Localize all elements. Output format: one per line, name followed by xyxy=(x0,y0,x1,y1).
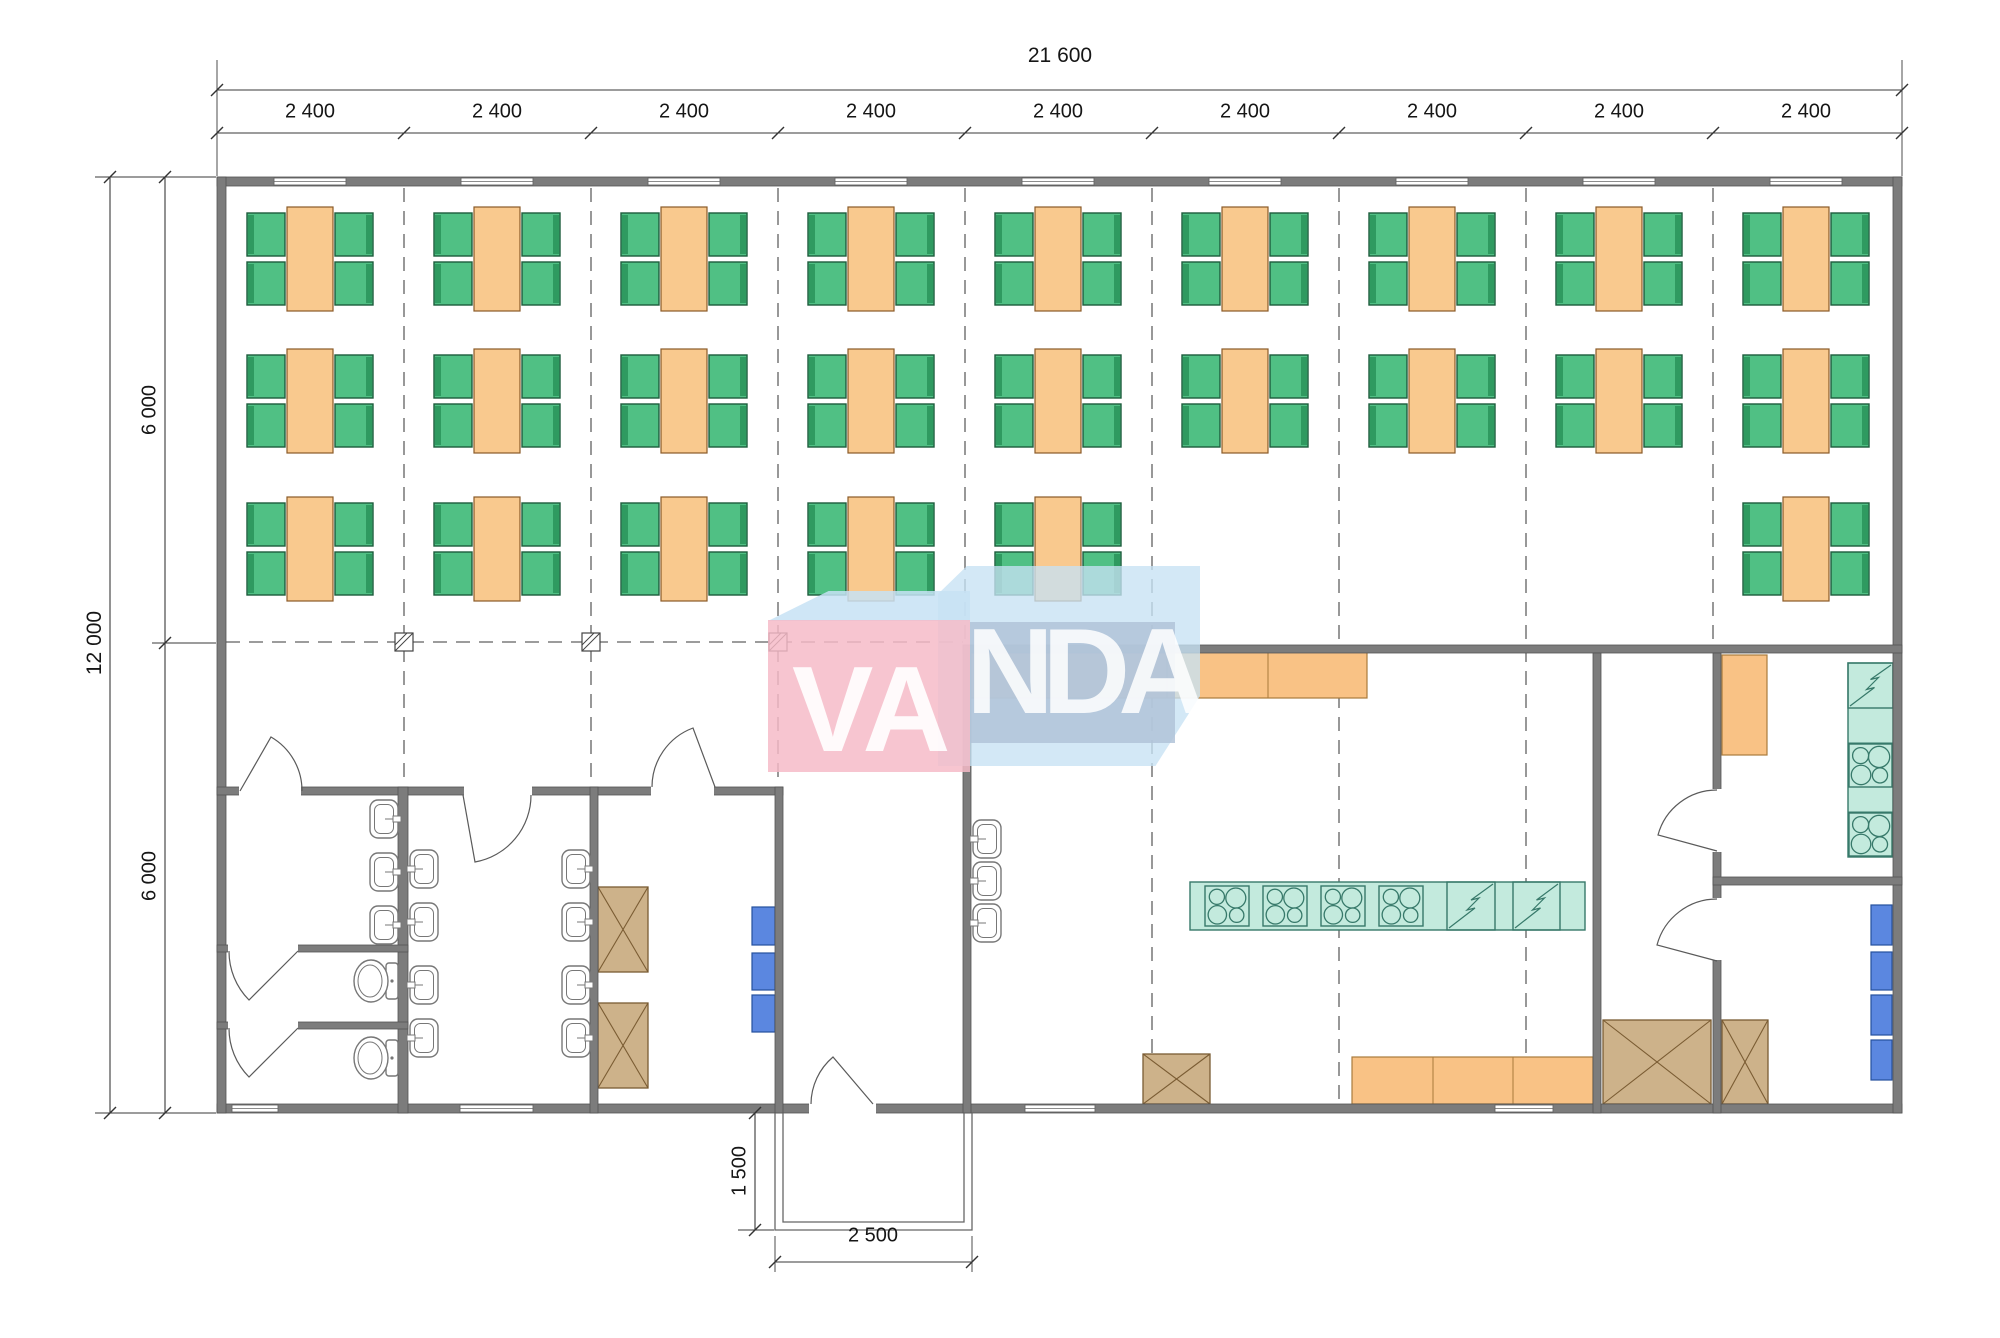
counter xyxy=(971,652,1367,698)
chair-icon xyxy=(927,505,933,544)
chair-icon xyxy=(366,554,372,593)
chair-icon xyxy=(366,406,372,445)
chair-icon xyxy=(1557,406,1563,445)
faucet-icon xyxy=(407,982,415,988)
door-icon xyxy=(1657,899,1717,961)
chair-icon xyxy=(996,406,1002,445)
faucet-icon xyxy=(393,922,401,928)
chair-icon xyxy=(1370,264,1376,303)
appliance-unit xyxy=(1871,995,1892,1035)
faucet-icon xyxy=(970,920,978,926)
dining-table xyxy=(474,497,520,601)
chair-icon xyxy=(740,505,746,544)
chair-icon xyxy=(1862,406,1868,445)
dining-table xyxy=(1035,349,1081,453)
toilet-icon xyxy=(390,979,393,982)
door-opening xyxy=(239,785,301,796)
chair-icon xyxy=(248,505,254,544)
chair-icon xyxy=(248,554,254,593)
floor-plan-drawing xyxy=(0,0,2000,1338)
chair-icon xyxy=(927,215,933,254)
chair-icon xyxy=(1183,215,1189,254)
chair-icon xyxy=(435,264,441,303)
door-opening xyxy=(228,943,298,953)
chair-icon xyxy=(1744,505,1750,544)
chair-icon xyxy=(1114,357,1120,396)
door-icon xyxy=(1658,790,1717,851)
chair-icon xyxy=(435,357,441,396)
appliance-unit xyxy=(752,953,775,990)
entrance-porch xyxy=(775,1113,972,1230)
chair-icon xyxy=(1744,406,1750,445)
faucet-icon xyxy=(585,866,593,872)
chair-icon xyxy=(1862,215,1868,254)
chair-icon xyxy=(996,554,1002,593)
faucet-icon xyxy=(970,836,978,842)
dining-table xyxy=(1222,349,1268,453)
chair-icon xyxy=(1488,406,1494,445)
faucet-icon xyxy=(407,866,415,872)
dining-table xyxy=(287,497,333,601)
chair-icon xyxy=(1488,357,1494,396)
counter xyxy=(1722,655,1767,755)
chair-icon xyxy=(553,406,559,445)
door-opening xyxy=(1711,898,1722,960)
chair-icon xyxy=(622,554,628,593)
chair-icon xyxy=(1675,406,1681,445)
chair-icon xyxy=(622,215,628,254)
door-opening xyxy=(228,1020,298,1030)
chair-icon xyxy=(435,554,441,593)
appliance-unit xyxy=(1871,952,1892,990)
door-icon xyxy=(229,951,298,1000)
chair-icon xyxy=(809,215,815,254)
chair-icon xyxy=(1744,357,1750,396)
entrance-porch xyxy=(783,1113,964,1222)
chair-icon xyxy=(366,264,372,303)
chair-icon xyxy=(435,215,441,254)
chair-icon xyxy=(809,406,815,445)
chair-icon xyxy=(1114,554,1120,593)
dining-table xyxy=(1596,349,1642,453)
appliance-unit xyxy=(752,995,775,1032)
dining-table xyxy=(474,349,520,453)
door-opening xyxy=(464,785,532,796)
chair-icon xyxy=(1862,357,1868,396)
appliance-unit xyxy=(1871,1040,1892,1080)
chair-icon xyxy=(1744,554,1750,593)
door-icon xyxy=(240,737,302,791)
chair-icon xyxy=(622,264,628,303)
chair-icon xyxy=(1370,215,1376,254)
chair-icon xyxy=(435,505,441,544)
chair-icon xyxy=(622,357,628,396)
chair-icon xyxy=(1183,264,1189,303)
chair-icon xyxy=(740,357,746,396)
dining-table xyxy=(1409,207,1455,311)
chair-icon xyxy=(1114,264,1120,303)
chair-icon xyxy=(1557,264,1563,303)
chair-icon xyxy=(1183,357,1189,396)
chair-icon xyxy=(248,215,254,254)
wall xyxy=(963,645,1902,653)
wall xyxy=(217,177,226,1113)
door-icon xyxy=(229,1028,298,1077)
dining-table xyxy=(1035,207,1081,311)
chair-icon xyxy=(553,215,559,254)
chair-icon xyxy=(1301,357,1307,396)
chair-icon xyxy=(927,406,933,445)
chair-icon xyxy=(1862,264,1868,303)
dining-table xyxy=(661,349,707,453)
door-opening xyxy=(809,1102,876,1114)
faucet-icon xyxy=(970,878,978,884)
kitchen-wall-counter xyxy=(1848,663,1893,857)
chair-icon xyxy=(1114,505,1120,544)
dining-table xyxy=(848,349,894,453)
chair-icon xyxy=(1557,357,1563,396)
chair-icon xyxy=(809,554,815,593)
chair-icon xyxy=(435,406,441,445)
chair-icon xyxy=(622,505,628,544)
dining-table xyxy=(848,207,894,311)
dining-table xyxy=(1035,497,1081,601)
chair-icon xyxy=(248,264,254,303)
faucet-icon xyxy=(407,919,415,925)
counter xyxy=(1352,1057,1593,1104)
chair-icon xyxy=(553,505,559,544)
faucet-icon xyxy=(585,1035,593,1041)
chair-icon xyxy=(553,554,559,593)
chair-icon xyxy=(1114,215,1120,254)
chair-icon xyxy=(809,505,815,544)
faucet-icon xyxy=(393,869,401,875)
door-icon xyxy=(811,1057,873,1104)
chair-icon xyxy=(1370,406,1376,445)
chair-icon xyxy=(1744,215,1750,254)
dining-table xyxy=(1783,207,1829,311)
chair-icon xyxy=(740,406,746,445)
chair-icon xyxy=(1301,406,1307,445)
chair-icon xyxy=(1862,505,1868,544)
dining-table xyxy=(287,207,333,311)
chair-icon xyxy=(740,264,746,303)
appliance-unit xyxy=(752,907,775,945)
chair-icon xyxy=(1301,215,1307,254)
chair-icon xyxy=(927,264,933,303)
chair-icon xyxy=(740,215,746,254)
dining-table xyxy=(661,497,707,601)
chair-icon xyxy=(366,357,372,396)
dining-table xyxy=(1783,349,1829,453)
chair-icon xyxy=(1488,264,1494,303)
dining-table xyxy=(661,207,707,311)
dining-table xyxy=(1222,207,1268,311)
faucet-icon xyxy=(393,816,401,822)
door-icon xyxy=(652,728,715,787)
wall xyxy=(590,787,598,1113)
chair-icon xyxy=(366,505,372,544)
chair-icon xyxy=(996,264,1002,303)
chair-icon xyxy=(1114,406,1120,445)
floor-plan-page: 21 6002 4002 4002 4002 4002 4002 4002 40… xyxy=(0,0,2000,1338)
chair-icon xyxy=(248,357,254,396)
chair-icon xyxy=(1557,215,1563,254)
door-icon xyxy=(463,795,531,862)
chair-icon xyxy=(1862,554,1868,593)
chair-icon xyxy=(740,554,746,593)
chair-icon xyxy=(996,505,1002,544)
faucet-icon xyxy=(585,919,593,925)
toilet-icon xyxy=(354,960,388,1002)
chair-icon xyxy=(1675,264,1681,303)
chair-icon xyxy=(553,264,559,303)
chair-icon xyxy=(996,215,1002,254)
chair-icon xyxy=(1675,357,1681,396)
door-opening xyxy=(1711,789,1722,852)
chair-icon xyxy=(809,357,815,396)
toilet-icon xyxy=(354,1037,388,1079)
chair-icon xyxy=(1488,215,1494,254)
chair-icon xyxy=(1744,264,1750,303)
chair-icon xyxy=(809,264,815,303)
chair-icon xyxy=(996,357,1002,396)
faucet-icon xyxy=(585,982,593,988)
chair-icon xyxy=(248,406,254,445)
faucet-icon xyxy=(407,1035,415,1041)
wall xyxy=(775,787,783,1113)
chair-icon xyxy=(1183,406,1189,445)
wall xyxy=(1713,877,1902,885)
dining-table xyxy=(474,207,520,311)
appliance-unit xyxy=(1871,905,1892,945)
chair-icon xyxy=(1370,357,1376,396)
toilet-icon xyxy=(390,1056,393,1059)
dining-table xyxy=(1783,497,1829,601)
chair-icon xyxy=(927,554,933,593)
chair-icon xyxy=(1675,215,1681,254)
chair-icon xyxy=(927,357,933,396)
dining-table xyxy=(1596,207,1642,311)
chair-icon xyxy=(553,357,559,396)
dining-table xyxy=(848,497,894,601)
wall xyxy=(1593,653,1601,1113)
dining-table xyxy=(1409,349,1455,453)
chair-icon xyxy=(622,406,628,445)
chair-icon xyxy=(1301,264,1307,303)
chair-icon xyxy=(366,215,372,254)
dining-table xyxy=(287,349,333,453)
door-opening xyxy=(651,785,714,796)
